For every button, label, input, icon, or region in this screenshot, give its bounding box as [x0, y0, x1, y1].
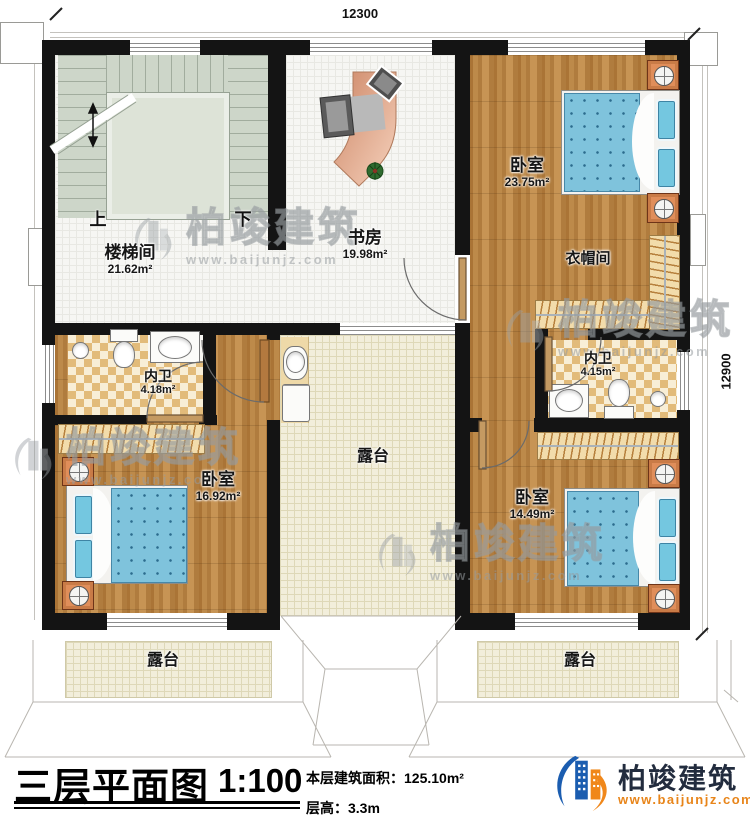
title-underline [14, 807, 300, 809]
room-area: 14.49m² [510, 508, 555, 522]
roof-outline [5, 616, 745, 757]
logo-website: www.baijunjz.com [618, 792, 750, 807]
room-label-terrace-center: 露台 [357, 448, 389, 466]
room-label-bedroom-sw: 卧室 16.92m² [196, 470, 241, 503]
title-underline [14, 801, 300, 804]
floor-area-text: 本层建筑面积：125.10m² [306, 768, 464, 788]
dimension-right: 12900 [719, 332, 734, 412]
room-name: 卧室 [510, 488, 555, 508]
floor-plan-page: 柏竣建筑 www.baijunjz.com 柏竣建筑 www.baijunjz.… [0, 0, 750, 827]
room-name: 露台 [564, 652, 596, 670]
room-name: 内卫 [581, 350, 616, 366]
door-corridor [202, 340, 269, 402]
logo-company-name: 柏竣建筑 [618, 757, 738, 797]
company-logo-icon [550, 751, 612, 815]
room-label-terrace-sw: 露台 [147, 652, 179, 670]
dimension-top: 12300 [330, 6, 390, 21]
room-name: 楼梯间 [105, 243, 156, 263]
room-label-terrace-se: 露台 [564, 652, 596, 670]
plan-linework [0, 0, 750, 827]
room-area: 4.18m² [141, 384, 176, 397]
room-label-bath-right: 内卫 4.15m² [581, 350, 616, 379]
desk-icon [320, 66, 403, 186]
plan-scale: 1:100 [218, 762, 302, 800]
room-name: 露台 [147, 652, 179, 670]
room-label-cloakroom: 衣帽间 [565, 250, 610, 267]
room-name: 书房 [343, 228, 388, 248]
stair-up-label: 上 [90, 205, 107, 230]
room-area: 21.62m² [105, 263, 156, 277]
room-name: 内卫 [141, 368, 176, 384]
room-label-bedroom-se: 卧室 14.49m² [510, 488, 555, 521]
room-name: 卧室 [505, 156, 550, 176]
room-area: 4.15m² [581, 366, 616, 379]
room-label-bath-left: 内卫 4.18m² [141, 368, 176, 397]
door-study [404, 258, 466, 320]
room-name: 卧室 [196, 470, 241, 490]
plant-icon [367, 162, 383, 180]
door-bedroom-se [479, 421, 529, 469]
room-area: 19.98m² [343, 248, 388, 262]
room-name: 露台 [357, 448, 389, 466]
stair-down-label: 下 [235, 205, 252, 230]
room-label-stairwell: 楼梯间 21.62m² [105, 243, 156, 276]
room-area: 16.92m² [196, 490, 241, 504]
room-name: 衣帽间 [565, 250, 610, 267]
floor-height-text: 层高：3.3m [306, 798, 380, 818]
room-label-study: 书房 19.98m² [343, 228, 388, 261]
room-label-bedroom-ne: 卧室 23.75m² [505, 156, 550, 189]
room-area: 23.75m² [505, 176, 550, 190]
